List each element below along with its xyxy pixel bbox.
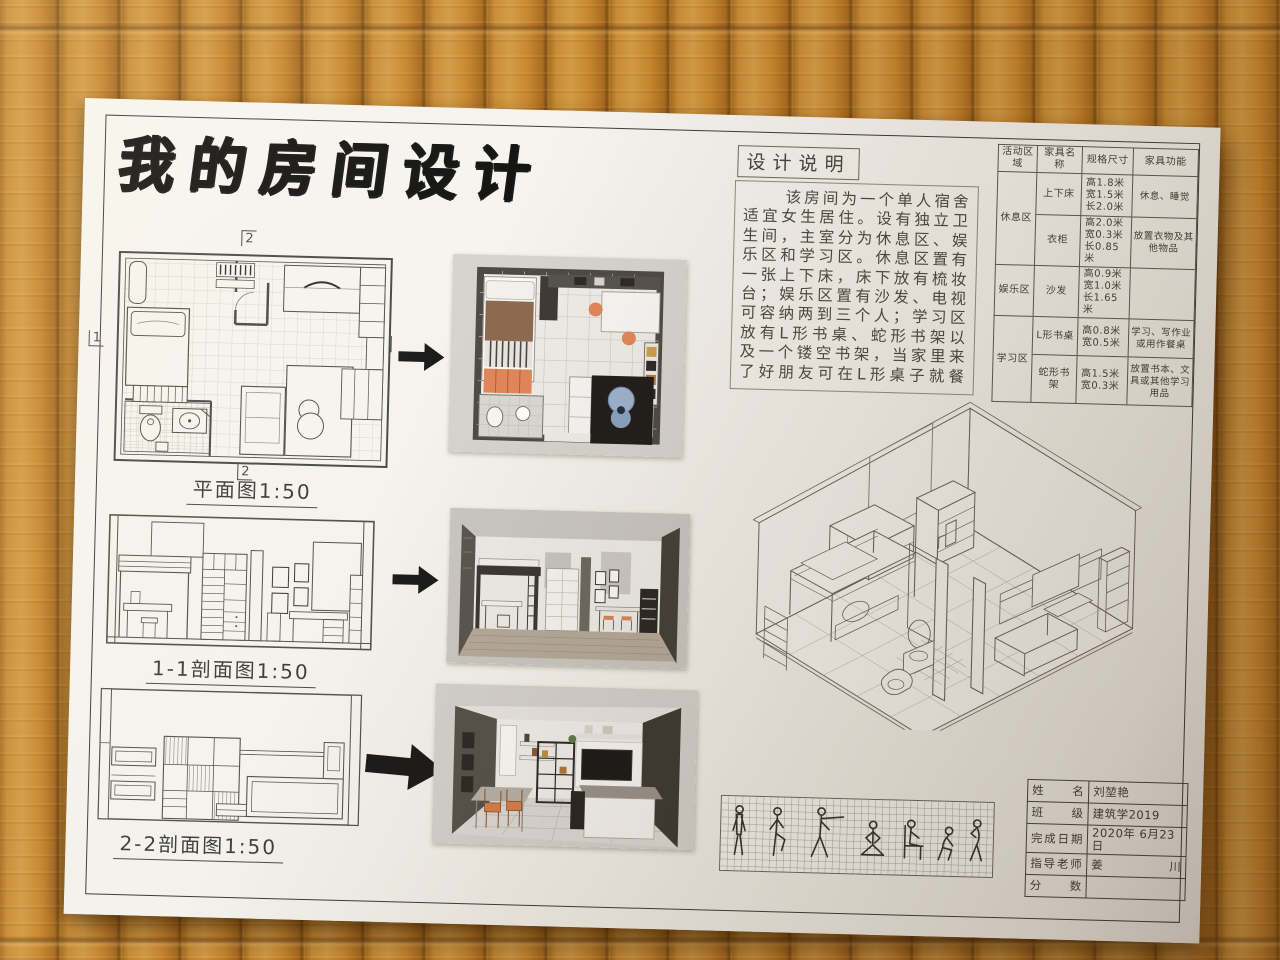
section-1-1-label: 1-1剖面图1:50: [146, 652, 316, 688]
function-cell: 休息、睡觉: [1132, 175, 1198, 219]
furniture-cell: 衣柜: [1034, 214, 1080, 266]
info-value-date: 2020年 6月23日: [1087, 825, 1187, 857]
zone-cell: 休息区: [995, 171, 1036, 265]
section-marker-1-left: 1: [89, 330, 105, 346]
design-notes: 设计说明 该房间为一个单人宿舍 适宜女生居住。设有独立卫 生间，主室分为休息区、…: [730, 145, 980, 395]
table-row: 学习区 L形书桌 高0.8米 宽0.5米 学习、写作业或用作餐桌: [993, 315, 1194, 358]
bamboo-seam-top: [0, 24, 1280, 36]
design-notes-body: 该房间为一个单人宿舍 适宜女生居住。设有独立卫 生间，主室分为休息区、娱 乐区和…: [730, 180, 979, 395]
furniture-cell: 上下床: [1036, 172, 1082, 215]
furniture-cell: L形书桌: [1032, 316, 1078, 355]
render-photo-plan-view: [448, 254, 687, 458]
info-label-score: 分 数: [1025, 874, 1087, 898]
info-label-name: 姓 名: [1027, 779, 1089, 803]
table-row: 完成日期 2020年 6月23日: [1026, 823, 1187, 856]
render-photo-elevation-view: [446, 508, 690, 669]
info-value-name: 刘堃艳: [1088, 781, 1188, 806]
size-cell: 高0.8米 宽0.5米: [1077, 318, 1129, 357]
zone-cell: 学习区: [992, 315, 1033, 402]
info-label-date: 完成日期: [1026, 823, 1088, 854]
section-2-2-label: 2-2剖面图1:50: [113, 827, 283, 863]
table-row: 娱乐区 沙发 高0.9米 宽1.0米 长1.65米: [994, 264, 1195, 320]
floor-plan-label: 平面图1:50: [186, 473, 318, 508]
function-cell: 放置书本、文具或其他学习用品: [1127, 357, 1193, 407]
render-photo-perspective-view: [432, 683, 698, 850]
section-1-1-drawing: [103, 511, 378, 654]
furniture-cell: 沙发: [1033, 265, 1079, 317]
section-2-2-drawing: [94, 685, 366, 830]
human-figure-sketches: [719, 795, 995, 878]
title-block-table: 姓 名 刘堃艳 班 级 建筑学2019 完成日期 2020年 6月23日 指导老…: [1024, 779, 1188, 901]
arrow-right-icon: [398, 338, 445, 375]
section-marker-2-top: 2: [241, 230, 257, 246]
furniture-cell: 蛇形书架: [1031, 354, 1077, 403]
function-cell: 学习、写作业或用作餐桌: [1128, 319, 1194, 359]
size-cell: 高1.8米 宽1.5米 长2.0米: [1081, 174, 1133, 217]
size-cell: 高0.9米 宽1.0米 长1.65米: [1078, 267, 1130, 319]
info-value-class: 建筑学2019: [1088, 803, 1188, 828]
column-header-zone: 活动区域: [998, 144, 1038, 172]
isometric-room-drawing: [745, 392, 1166, 737]
function-cell: [1129, 268, 1195, 321]
info-label-class: 班 级: [1027, 801, 1089, 825]
size-cell: 高1.5米 宽0.3米: [1076, 356, 1128, 405]
info-value-teacher: 姜 川: [1086, 854, 1186, 879]
column-header-function: 家具功能: [1133, 148, 1199, 177]
column-header-size: 规格尺寸: [1082, 147, 1134, 175]
poster-title: 我的房间设计: [114, 117, 645, 216]
floor-plan-drawing: [111, 249, 395, 470]
design-poster: 我的房间设计 2 1 1 2: [64, 98, 1221, 943]
function-cell: 放置衣物及其他物品: [1130, 217, 1196, 270]
furniture-table: 活动区域 家具名称 规格尺寸 家具功能 休息区 上下床 高1.8米 宽1.5米 …: [991, 144, 1199, 407]
table-row: 休息区 上下床 高1.8米 宽1.5米 长2.0米 休息、睡觉: [997, 171, 1198, 218]
zone-cell: 娱乐区: [994, 264, 1034, 316]
table-row: 分 数: [1025, 874, 1186, 900]
design-notes-heading: 设计说明: [737, 145, 860, 180]
size-cell: 高2.0米 宽0.3米 长0.85米: [1079, 216, 1131, 268]
column-header-furniture: 家具名称: [1037, 145, 1083, 173]
info-value-score: [1086, 876, 1186, 901]
arrow-right-icon: [392, 561, 439, 598]
info-label-teacher: 指导老师: [1025, 852, 1087, 876]
